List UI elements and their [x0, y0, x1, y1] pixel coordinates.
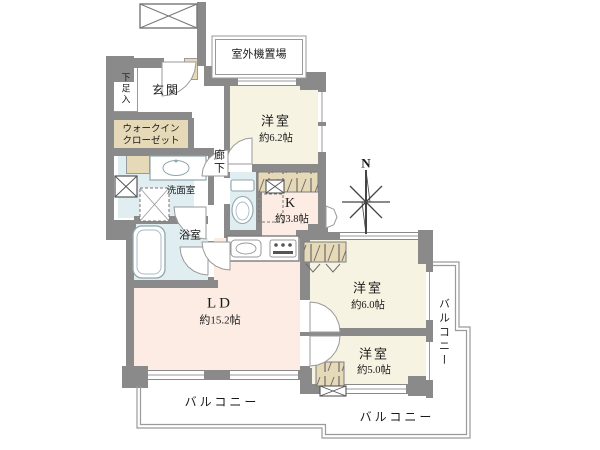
kitchen-sink-icon: [231, 240, 261, 257]
pipe-shaft-icon: [140, 4, 197, 28]
label-shoe-cabinet: 下足入: [121, 73, 130, 106]
label-wic-line2: クローゼット: [122, 137, 179, 147]
pipe-space-icon: [115, 176, 137, 197]
label-kitchen-size: 約3.8帖: [275, 215, 309, 226]
washroom-sink-icon: [150, 156, 206, 180]
stove-icon: [270, 240, 296, 257]
label-balcony-bottom-left: バルコニー: [185, 396, 260, 408]
compass-icon: [342, 170, 390, 234]
ac-outdoor-unit-icon: [320, 386, 346, 396]
label-bedroom-62-size: 約6.2帖: [259, 134, 293, 145]
label-kitchen: K: [285, 197, 295, 211]
kitchen-counter: [227, 236, 299, 261]
bedroom-60-door: [310, 302, 340, 332]
label-bedroom-50: 洋室: [359, 348, 389, 361]
label-balcony-right: バルコニー: [438, 298, 449, 368]
bedroom-62-door: [226, 138, 252, 164]
label-bedroom-60: 洋室: [353, 282, 383, 295]
washer-space-icon: [140, 188, 169, 221]
floor-plan: 下足入 玄関 ウォークイン クローゼット 廊下 洗面室 浴室 室外機置場 洋室 …: [0, 0, 600, 450]
label-bathroom: 浴室: [179, 231, 201, 242]
toilet-icon: [231, 180, 254, 224]
label-hallway: 廊下: [213, 149, 224, 175]
kitchen-service-door: [326, 206, 337, 228]
bathtub-icon: [133, 226, 165, 278]
label-outdoor-unit: 室外機置場: [232, 50, 287, 61]
label-compass-north: N: [361, 157, 370, 170]
label-living-dining-size: 約15.2帖: [199, 316, 240, 327]
closet-door-marks: [306, 264, 340, 272]
label-wic-line1: ウォークイン: [122, 125, 179, 135]
label-genkan: 玄関: [152, 84, 180, 96]
label-balcony-bottom-right: バルコニー: [360, 411, 435, 423]
label-washroom: 洗面室: [167, 187, 196, 197]
label-bedroom-50-size: 約5.0帖: [357, 366, 391, 377]
label-bedroom-60-size: 約6.0帖: [351, 301, 385, 312]
label-living-dining: LD: [207, 297, 233, 312]
kitchen-shaft-icon: [266, 180, 284, 193]
label-bedroom-62: 洋室: [261, 115, 291, 128]
